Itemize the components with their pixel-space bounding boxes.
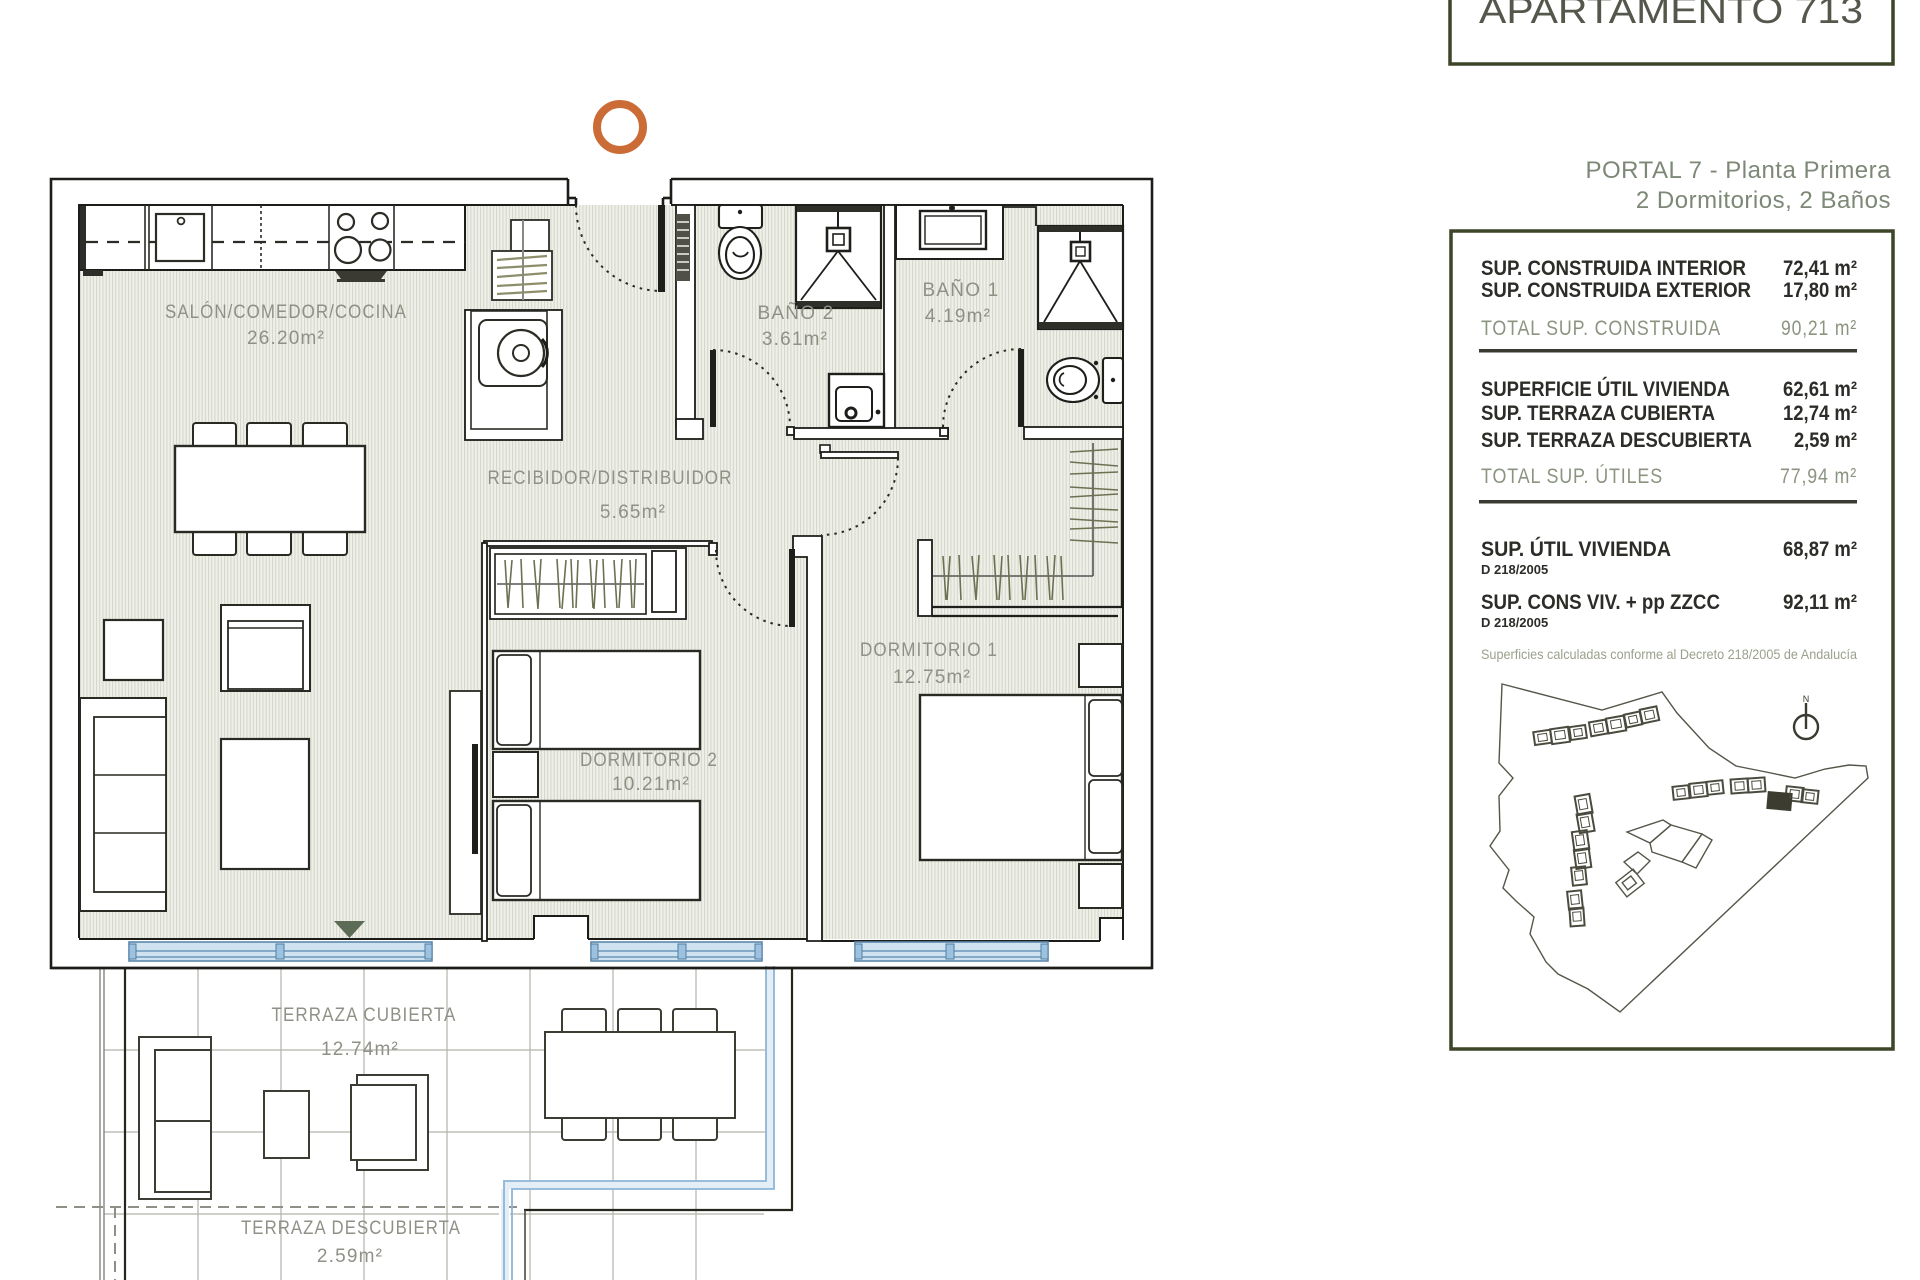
svg-text:SUPERFICIE ÚTIL VIVIENDA: SUPERFICIE ÚTIL VIVIENDA	[1481, 377, 1730, 401]
svg-text:TOTAL SUP. ÚTILES: TOTAL SUP. ÚTILES	[1481, 465, 1663, 488]
svg-text:RECIBIDOR/DISTRIBUIDOR: RECIBIDOR/DISTRIBUIDOR	[488, 468, 733, 489]
svg-text:3.61m²: 3.61m²	[762, 329, 828, 350]
svg-text:DORMITORIO 2: DORMITORIO 2	[580, 750, 718, 771]
svg-text:77,94 m²: 77,94 m²	[1780, 465, 1857, 488]
svg-text:12.75m²: 12.75m²	[893, 667, 971, 688]
svg-text:TOTAL SUP. CONSTRUIDA: TOTAL SUP. CONSTRUIDA	[1481, 317, 1721, 340]
svg-text:72,41 m²: 72,41 m²	[1783, 257, 1857, 280]
svg-text:SUP. TERRAZA CUBIERTA: SUP. TERRAZA CUBIERTA	[1481, 402, 1715, 425]
svg-text:17,80 m²: 17,80 m²	[1783, 279, 1857, 302]
svg-text:2 Dormitorios, 2 Baños: 2 Dormitorios, 2 Baños	[1636, 187, 1891, 214]
svg-text:12.74m²: 12.74m²	[321, 1039, 399, 1060]
svg-text:90,21 m²: 90,21 m²	[1781, 317, 1857, 340]
svg-text:D 218/2005: D 218/2005	[1481, 562, 1548, 577]
svg-text:SUP. ÚTIL VIVIENDA: SUP. ÚTIL VIVIENDA	[1481, 537, 1671, 561]
svg-text:26.20m²: 26.20m²	[247, 328, 325, 349]
svg-text:D 218/2005: D 218/2005	[1481, 615, 1548, 630]
svg-text:SUP. CONSTRUIDA INTERIOR: SUP. CONSTRUIDA INTERIOR	[1481, 257, 1746, 280]
svg-text:5.65m²: 5.65m²	[600, 502, 666, 523]
svg-text:2.59m²: 2.59m²	[317, 1246, 383, 1267]
svg-text:12,74 m²: 12,74 m²	[1783, 402, 1857, 425]
svg-text:BAÑO 1: BAÑO 1	[923, 279, 1000, 301]
svg-text:62,61 m²: 62,61 m²	[1783, 378, 1857, 401]
svg-text:SUP. TERRAZA DESCUBIERTA: SUP. TERRAZA DESCUBIERTA	[1481, 429, 1752, 452]
svg-text:SUP. CONS VIV. + pp ZZCC: SUP. CONS VIV. + pp ZZCC	[1481, 591, 1720, 614]
svg-text:2,59 m²: 2,59 m²	[1794, 429, 1857, 452]
svg-text:SUP. CONSTRUIDA EXTERIOR: SUP. CONSTRUIDA EXTERIOR	[1481, 279, 1751, 302]
svg-text:Superficies calculadas conform: Superficies calculadas conforme al Decre…	[1481, 646, 1857, 662]
svg-text:PORTAL 7 - Planta Primera: PORTAL 7 - Planta Primera	[1586, 157, 1892, 184]
svg-text:BAÑO 2: BAÑO 2	[758, 302, 835, 324]
svg-text:TERRAZA DESCUBIERTA: TERRAZA DESCUBIERTA	[241, 1218, 461, 1239]
svg-text:APARTAMENTO 713: APARTAMENTO 713	[1479, 0, 1863, 31]
svg-text:TERRAZA CUBIERTA: TERRAZA CUBIERTA	[272, 1005, 457, 1026]
svg-text:4.19m²: 4.19m²	[925, 306, 991, 327]
svg-text:DORMITORIO 1: DORMITORIO 1	[860, 640, 998, 661]
svg-text:92,11 m²: 92,11 m²	[1783, 591, 1857, 614]
svg-text:N: N	[1803, 694, 1810, 704]
svg-text:SALÓN/COMEDOR/COCINA: SALÓN/COMEDOR/COCINA	[165, 301, 407, 323]
svg-text:10.21m²: 10.21m²	[612, 774, 690, 795]
svg-text:68,87 m²: 68,87 m²	[1783, 538, 1857, 561]
